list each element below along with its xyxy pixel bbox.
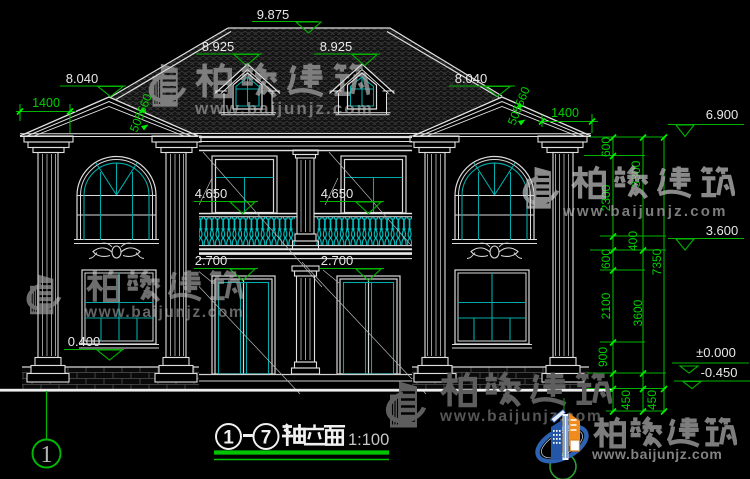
svg-text:600: 600 [599, 249, 613, 269]
svg-text:8.925: 8.925 [320, 39, 353, 54]
svg-text:1400: 1400 [551, 106, 579, 120]
svg-text:6.900: 6.900 [706, 107, 739, 122]
svg-text:±0.000: ±0.000 [696, 345, 736, 360]
svg-text:7: 7 [261, 428, 272, 449]
svg-text:8.925: 8.925 [202, 39, 235, 54]
svg-text:www.baijunjz.com: www.baijunjz.com [591, 446, 722, 462]
svg-text:9.875: 9.875 [257, 7, 290, 22]
svg-text:8.040: 8.040 [66, 71, 99, 86]
svg-text:8.040: 8.040 [455, 71, 488, 86]
svg-text:1400: 1400 [32, 96, 60, 110]
svg-text:2.700: 2.700 [195, 253, 228, 268]
svg-text:1: 1 [223, 428, 234, 449]
svg-text:400: 400 [626, 231, 640, 251]
svg-text:0.400: 0.400 [68, 334, 101, 349]
svg-text:www.baijunjz.com: www.baijunjz.com [562, 203, 728, 220]
svg-text:1: 1 [41, 442, 53, 468]
svg-text:2.700: 2.700 [321, 253, 354, 268]
svg-text:4.650: 4.650 [321, 186, 354, 201]
svg-text:450: 450 [619, 390, 633, 410]
svg-text:900: 900 [596, 347, 610, 367]
svg-text:7350: 7350 [650, 248, 664, 275]
svg-text:600: 600 [599, 137, 613, 157]
svg-text:450: 450 [645, 390, 659, 410]
svg-text:-0.450: -0.450 [701, 365, 738, 380]
svg-text:www.baijunjz.com: www.baijunjz.com [194, 99, 374, 118]
svg-text:3600: 3600 [631, 299, 645, 326]
svg-text:4.650: 4.650 [195, 186, 228, 201]
svg-text:1:100: 1:100 [348, 431, 389, 449]
svg-text:2100: 2100 [599, 292, 613, 319]
svg-text:3.600: 3.600 [706, 223, 739, 238]
svg-text:www.baijunjz.com: www.baijunjz.com [84, 304, 244, 321]
